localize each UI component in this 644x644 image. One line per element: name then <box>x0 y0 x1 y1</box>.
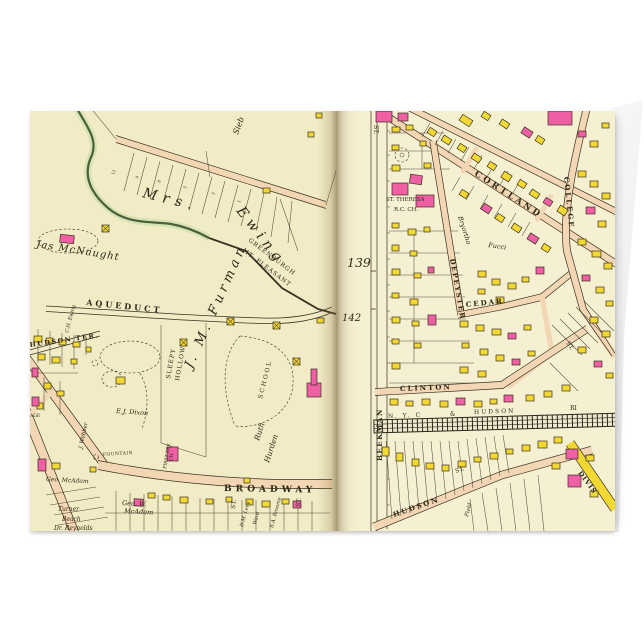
building-footprint <box>52 463 60 469</box>
building-footprint <box>604 263 612 269</box>
building-footprint <box>544 391 552 397</box>
building-footprint <box>410 299 418 305</box>
building-footprint <box>496 355 504 361</box>
building-footprint <box>548 111 572 125</box>
building-footprint <box>526 395 534 401</box>
building-footprint <box>606 373 613 378</box>
building-footprint <box>71 359 77 364</box>
building-footprint <box>480 349 488 355</box>
label-reynolds: Dr. Reynolds <box>53 525 93 531</box>
building-footprint <box>396 453 403 461</box>
building-footprint <box>414 273 421 278</box>
building-footprint <box>163 495 170 500</box>
building-footprint <box>392 223 399 228</box>
left-page-paper <box>30 111 342 531</box>
building-footprint <box>602 331 610 337</box>
building-footprint <box>311 369 317 385</box>
building-footprint <box>424 163 431 168</box>
building-footprint <box>428 267 434 273</box>
building-footprint <box>44 383 51 389</box>
building-footprint <box>412 459 419 466</box>
building-footprint <box>412 321 419 326</box>
book-gutter-shadow <box>318 111 358 531</box>
building-footprint <box>410 251 417 256</box>
building-footprint <box>474 457 481 462</box>
building-footprint <box>460 367 468 373</box>
building-footprint <box>90 467 96 472</box>
label-mcadam2: McAdam <box>123 507 154 517</box>
building-footprint <box>392 363 400 369</box>
building-footprint <box>508 333 516 339</box>
building-footprint <box>522 445 530 451</box>
building-footprint <box>282 499 289 504</box>
label-st-theresa: ST. THERESA <box>386 197 426 203</box>
building-footprint <box>578 347 586 353</box>
building-footprint <box>38 459 46 471</box>
atlas-map-print: Sieb Mrs. Ewing 11 9 8 5 2 1 Jas McNaugh… <box>30 111 615 531</box>
building-footprint <box>490 399 497 404</box>
building-footprint <box>408 229 416 235</box>
building-footprint <box>414 343 421 348</box>
building-footprint <box>578 239 586 245</box>
building-footprint <box>478 371 486 377</box>
building-footprint <box>406 401 413 406</box>
building-footprint <box>524 325 531 330</box>
building-footprint <box>244 478 250 483</box>
building-footprint <box>606 301 613 306</box>
building-footprint <box>390 399 398 405</box>
building-footprint <box>263 188 270 193</box>
building-footprint <box>492 329 501 335</box>
building-footprint <box>582 275 590 281</box>
building-footprint <box>462 343 469 348</box>
building-footprint <box>508 283 516 289</box>
building-footprint <box>32 397 39 406</box>
building-footprint <box>392 339 399 344</box>
building-footprint <box>504 395 513 402</box>
label-turner: Turner <box>58 506 80 513</box>
building-footprint <box>262 501 270 507</box>
building-footprint <box>32 368 38 377</box>
building-footprint <box>586 207 595 214</box>
building-footprint <box>590 181 598 187</box>
building-footprint <box>148 493 155 498</box>
building-footprint <box>512 359 520 365</box>
building-footprint <box>492 279 500 285</box>
building-footprint <box>506 449 513 454</box>
building-footprint <box>598 221 606 227</box>
building-footprint <box>308 132 314 137</box>
building-footprint <box>420 141 426 146</box>
building-footprint <box>562 385 570 391</box>
flag-symbol <box>227 318 234 325</box>
building-footprint <box>554 437 562 443</box>
building-footprint <box>392 245 399 251</box>
building-footprint <box>578 131 586 137</box>
label-broadway: BROADWAY <box>224 484 316 496</box>
building-footprint <box>392 145 399 150</box>
flag-symbol <box>293 358 300 365</box>
building-footprint <box>592 251 601 257</box>
greeting-card-mockup: Sieb Mrs. Ewing 11 9 8 5 2 1 Jas McNaugh… <box>0 0 644 644</box>
building-footprint <box>38 354 45 360</box>
building-footprint <box>590 141 598 147</box>
label-rr-amp: & <box>450 411 456 418</box>
building-footprint <box>52 357 60 363</box>
building-footprint <box>586 455 594 461</box>
building-footprint <box>490 453 498 459</box>
building-footprint <box>522 277 529 282</box>
label-st1: ST. <box>230 499 238 509</box>
label-rr-nyc: N. Y. C <box>388 412 423 420</box>
building-footprint <box>590 317 598 323</box>
building-footprint <box>116 377 125 384</box>
label-beekman: BEEKMAN <box>375 408 384 461</box>
building-footprint <box>474 401 482 407</box>
flag-symbol <box>273 322 280 329</box>
building-footprint <box>392 165 400 171</box>
building-footprint <box>57 391 64 396</box>
building-footprint <box>594 361 602 367</box>
label-st-top: ST. <box>372 125 379 134</box>
building-footprint <box>392 269 400 275</box>
building-footprint <box>578 171 586 177</box>
building-footprint <box>528 351 535 356</box>
building-footprint <box>398 113 408 121</box>
label-rr-hudson: HUDSON <box>474 408 516 416</box>
building-footprint <box>422 399 430 405</box>
label-rr-ri: RI <box>570 405 578 412</box>
flag-symbol <box>102 225 109 232</box>
building-footprint <box>596 287 604 293</box>
flag-symbol <box>180 339 187 346</box>
building-footprint <box>86 347 91 352</box>
building-footprint <box>476 325 484 331</box>
label-beach: Beach <box>61 516 81 523</box>
label-age: AGE <box>30 413 40 419</box>
building-footprint <box>406 125 413 130</box>
building-footprint <box>538 441 547 448</box>
building-footprint <box>456 398 465 405</box>
building-footprint <box>478 271 486 277</box>
building-footprint <box>478 289 485 294</box>
building-footprint <box>536 267 544 274</box>
building-footprint <box>440 401 448 407</box>
building-footprint <box>392 293 399 298</box>
building-footprint <box>442 465 449 471</box>
card-front-panel[interactable]: Sieb Mrs. Ewing 11 9 8 5 2 1 Jas McNaugh… <box>30 111 615 531</box>
label-clinton: CLINTON <box>400 382 452 393</box>
building-footprint <box>180 497 188 503</box>
label-st2: ST. <box>295 497 303 507</box>
building-footprint <box>392 317 400 323</box>
building-footprint <box>426 463 434 469</box>
building-footprint <box>552 463 560 469</box>
building-footprint <box>392 127 400 132</box>
building-footprint <box>602 123 609 128</box>
building-footprint <box>602 193 610 199</box>
building-footprint <box>460 321 468 327</box>
label-rc-ch: R.C. CH. <box>394 207 418 213</box>
building-footprint <box>424 227 430 232</box>
building-footprint <box>428 315 436 325</box>
building-footprint <box>376 111 392 122</box>
building-footprint <box>566 449 578 459</box>
building-footprint <box>206 499 213 504</box>
